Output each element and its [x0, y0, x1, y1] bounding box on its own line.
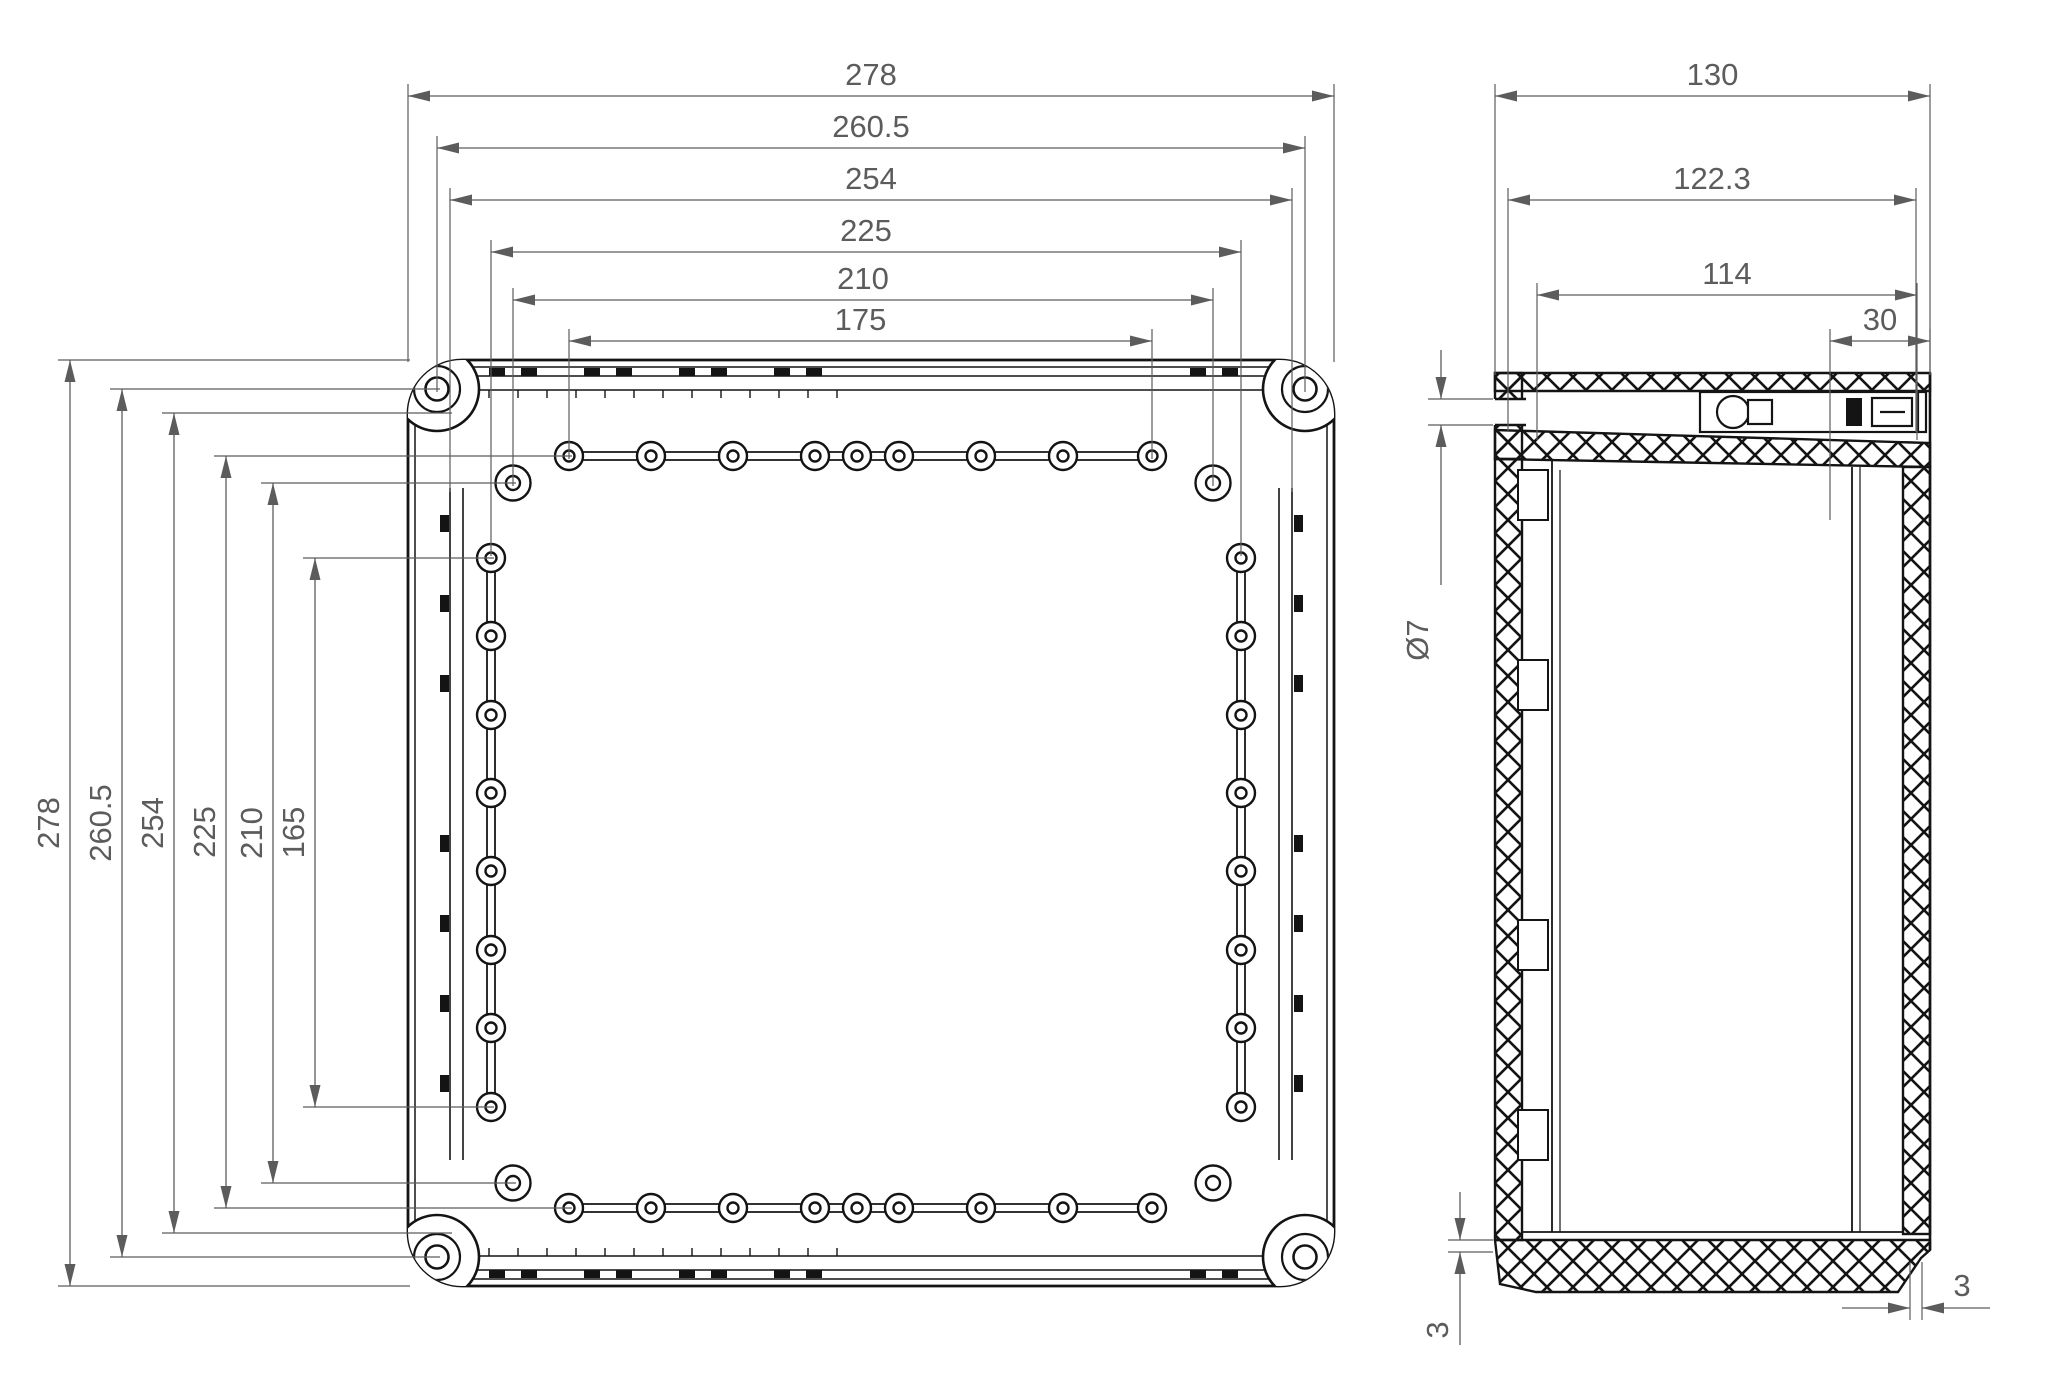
dim-arrow [437, 143, 459, 154]
dim-arrow [65, 360, 76, 382]
boss-right-column-hole [1236, 1023, 1247, 1034]
edge-notch [1294, 1075, 1303, 1092]
edge-notch [440, 995, 449, 1012]
dim-label-hole-diameter: Ø7 [1400, 619, 1435, 660]
edge-notch [584, 368, 600, 376]
edge-notch [1222, 1270, 1238, 1278]
dim-front-top-210: 210 [837, 261, 889, 296]
boss-top-row-hole [894, 451, 905, 462]
dim-side-hole-diameter: Ø7 [1400, 350, 1493, 661]
edge-notch [521, 1270, 537, 1278]
boss-left-column-hole [486, 788, 497, 799]
edge-notch [616, 368, 632, 376]
lid-bottom-section [1495, 430, 1930, 467]
dim-arrow [1436, 377, 1447, 399]
boss-bottom-row-hole [728, 1203, 739, 1214]
dim-arrow [65, 1264, 76, 1286]
dim-arrow [1888, 1303, 1910, 1314]
edge-notch [711, 1270, 727, 1278]
base-bottom-skirt-section [1495, 1240, 1930, 1292]
dim-arrow [169, 413, 180, 435]
front-outline-inner [415, 367, 1327, 1279]
dim-arrow [450, 195, 472, 206]
dim-arrow [1908, 91, 1930, 102]
boss-top-row-hole [1058, 451, 1069, 462]
edge-notch [440, 515, 449, 532]
edge-notch [806, 1270, 822, 1278]
wall-step [1518, 660, 1548, 710]
edge-notch [806, 368, 822, 376]
dim-arrow [169, 1211, 180, 1233]
wall-step [1518, 470, 1548, 520]
boss-right-column-hole [1236, 1102, 1247, 1113]
front-outline [408, 360, 1334, 1286]
edge-notch [440, 1075, 449, 1092]
dim-arrow [1455, 1252, 1466, 1274]
boss-top-row-hole [646, 451, 657, 462]
boss-bottom-row-hole [852, 1203, 863, 1214]
boss-bottom-row-hole [1147, 1203, 1158, 1214]
boss-right-column-hole [1236, 945, 1247, 956]
dim-arrow [1537, 290, 1559, 301]
dim-arrow [569, 336, 591, 347]
boss-top-row-hole [852, 451, 863, 462]
boss-left-column-hole [486, 866, 497, 877]
dim-arrow [1312, 91, 1334, 102]
edge-notch [679, 1270, 695, 1278]
dim-arrow [1270, 195, 1292, 206]
dim-arrow [1455, 1218, 1466, 1240]
boss-top-row-hole [728, 451, 739, 462]
dim-front-left-210: 210 [234, 807, 269, 859]
boss-bottom-row-hole [976, 1203, 987, 1214]
dim-arrow [310, 558, 321, 580]
dim-arrow [1436, 425, 1447, 447]
technical-drawing-canvas: 278260.5254225210175278260.5254225210165… [0, 0, 2063, 1376]
edge-notch [1190, 1270, 1206, 1278]
dim-side-top-122.3: 122.3 [1673, 161, 1751, 196]
dim-side-top-114: 114 [1702, 256, 1751, 291]
edge-notch [1294, 515, 1303, 532]
dim-front-top-254: 254 [845, 161, 897, 196]
dim-front-top-175: 175 [835, 302, 887, 337]
edge-notch [1294, 595, 1303, 612]
edge-notch [440, 835, 449, 852]
wall-step [1518, 920, 1548, 970]
dim-wall-thickness-bottom-left: 3 [1420, 1192, 1493, 1345]
dim-arrow [1130, 336, 1152, 347]
dim-arrow [1219, 247, 1241, 258]
front-view [395, 347, 1347, 1299]
boss-right-column-hole [1236, 788, 1247, 799]
boss-left-column-hole [486, 945, 497, 956]
wall-step [1518, 1110, 1548, 1160]
boss-bottom-row-hole [1058, 1203, 1069, 1214]
edge-notch [711, 368, 727, 376]
dimensions: 278260.5254225210175278260.5254225210165… [31, 57, 1990, 1345]
dim-side-top-30: 30 [1863, 302, 1897, 337]
dim-front-top-225: 225 [840, 213, 892, 248]
dim-arrow [221, 456, 232, 478]
edge-notch [616, 1270, 632, 1278]
dim-side-top-130: 130 [1687, 57, 1739, 92]
cover-right-wall-section [1903, 467, 1930, 1234]
boss-inner-corner-hole [1206, 1176, 1220, 1190]
boss-right-column-hole [1236, 710, 1247, 721]
cover-latch-detail [1700, 392, 1926, 432]
edge-notch [440, 675, 449, 692]
boss-top-row-hole [976, 451, 987, 462]
edge-notch [584, 1270, 600, 1278]
dim-arrow [310, 1085, 321, 1107]
edge-notch [679, 368, 695, 376]
edge-notch [1222, 368, 1238, 376]
boss-bottom-row-hole [810, 1203, 821, 1214]
dim-arrow [408, 91, 430, 102]
dim-front-top-260.5: 260.5 [832, 109, 910, 144]
dim-front-left-278: 278 [31, 797, 66, 849]
dim-arrow [221, 1186, 232, 1208]
edge-notch [1294, 915, 1303, 932]
edge-notch [1190, 368, 1206, 376]
edge-notch [440, 915, 449, 932]
edge-notch [521, 368, 537, 376]
dim-arrow [1895, 290, 1917, 301]
dim-label-thickness-left: 3 [1420, 1321, 1455, 1338]
drawing-svg: 278260.5254225210175278260.5254225210165… [0, 0, 2063, 1376]
dim-arrow [268, 1161, 279, 1183]
edge-notch [489, 1270, 505, 1278]
dim-arrow [1191, 295, 1213, 306]
edge-notch [774, 1270, 790, 1278]
edge-notch [1294, 835, 1303, 852]
dim-arrow [117, 389, 128, 411]
boss-left-column-hole [486, 1023, 497, 1034]
dim-arrow [117, 1235, 128, 1257]
dim-arrow [1894, 195, 1916, 206]
screw-hole [1294, 1246, 1317, 1269]
dim-arrow [268, 483, 279, 505]
edge-notch [440, 595, 449, 612]
boss-bottom-row-hole [646, 1203, 657, 1214]
dim-arrow [1830, 336, 1852, 347]
dim-front-left-225: 225 [187, 806, 222, 858]
dim-front-left-165: 165 [276, 807, 311, 859]
boss-left-column-hole [486, 710, 497, 721]
boss-right-column-hole [1236, 631, 1247, 642]
dim-arrow [1495, 91, 1517, 102]
edge-notch [1294, 995, 1303, 1012]
dim-arrow [1908, 336, 1930, 347]
edge-notch [774, 368, 790, 376]
boss-left-column-hole [486, 631, 497, 642]
dim-arrow [1283, 143, 1305, 154]
edge-notch [1294, 675, 1303, 692]
dim-arrow [1508, 195, 1530, 206]
boss-right-column-hole [1236, 866, 1247, 877]
boss-top-row-hole [810, 451, 821, 462]
dim-arrow [1922, 1303, 1944, 1314]
dim-front-left-260.5: 260.5 [83, 784, 118, 862]
dim-arrow [491, 247, 513, 258]
dim-front-left-254: 254 [135, 797, 170, 849]
dim-arrow [513, 295, 535, 306]
side-view [1491, 373, 1930, 1292]
dim-label-thickness-right: 3 [1953, 1268, 1970, 1303]
boss-bottom-row-hole [894, 1203, 905, 1214]
dim-front-top-278: 278 [845, 57, 897, 92]
lid-top-section [1495, 373, 1930, 391]
